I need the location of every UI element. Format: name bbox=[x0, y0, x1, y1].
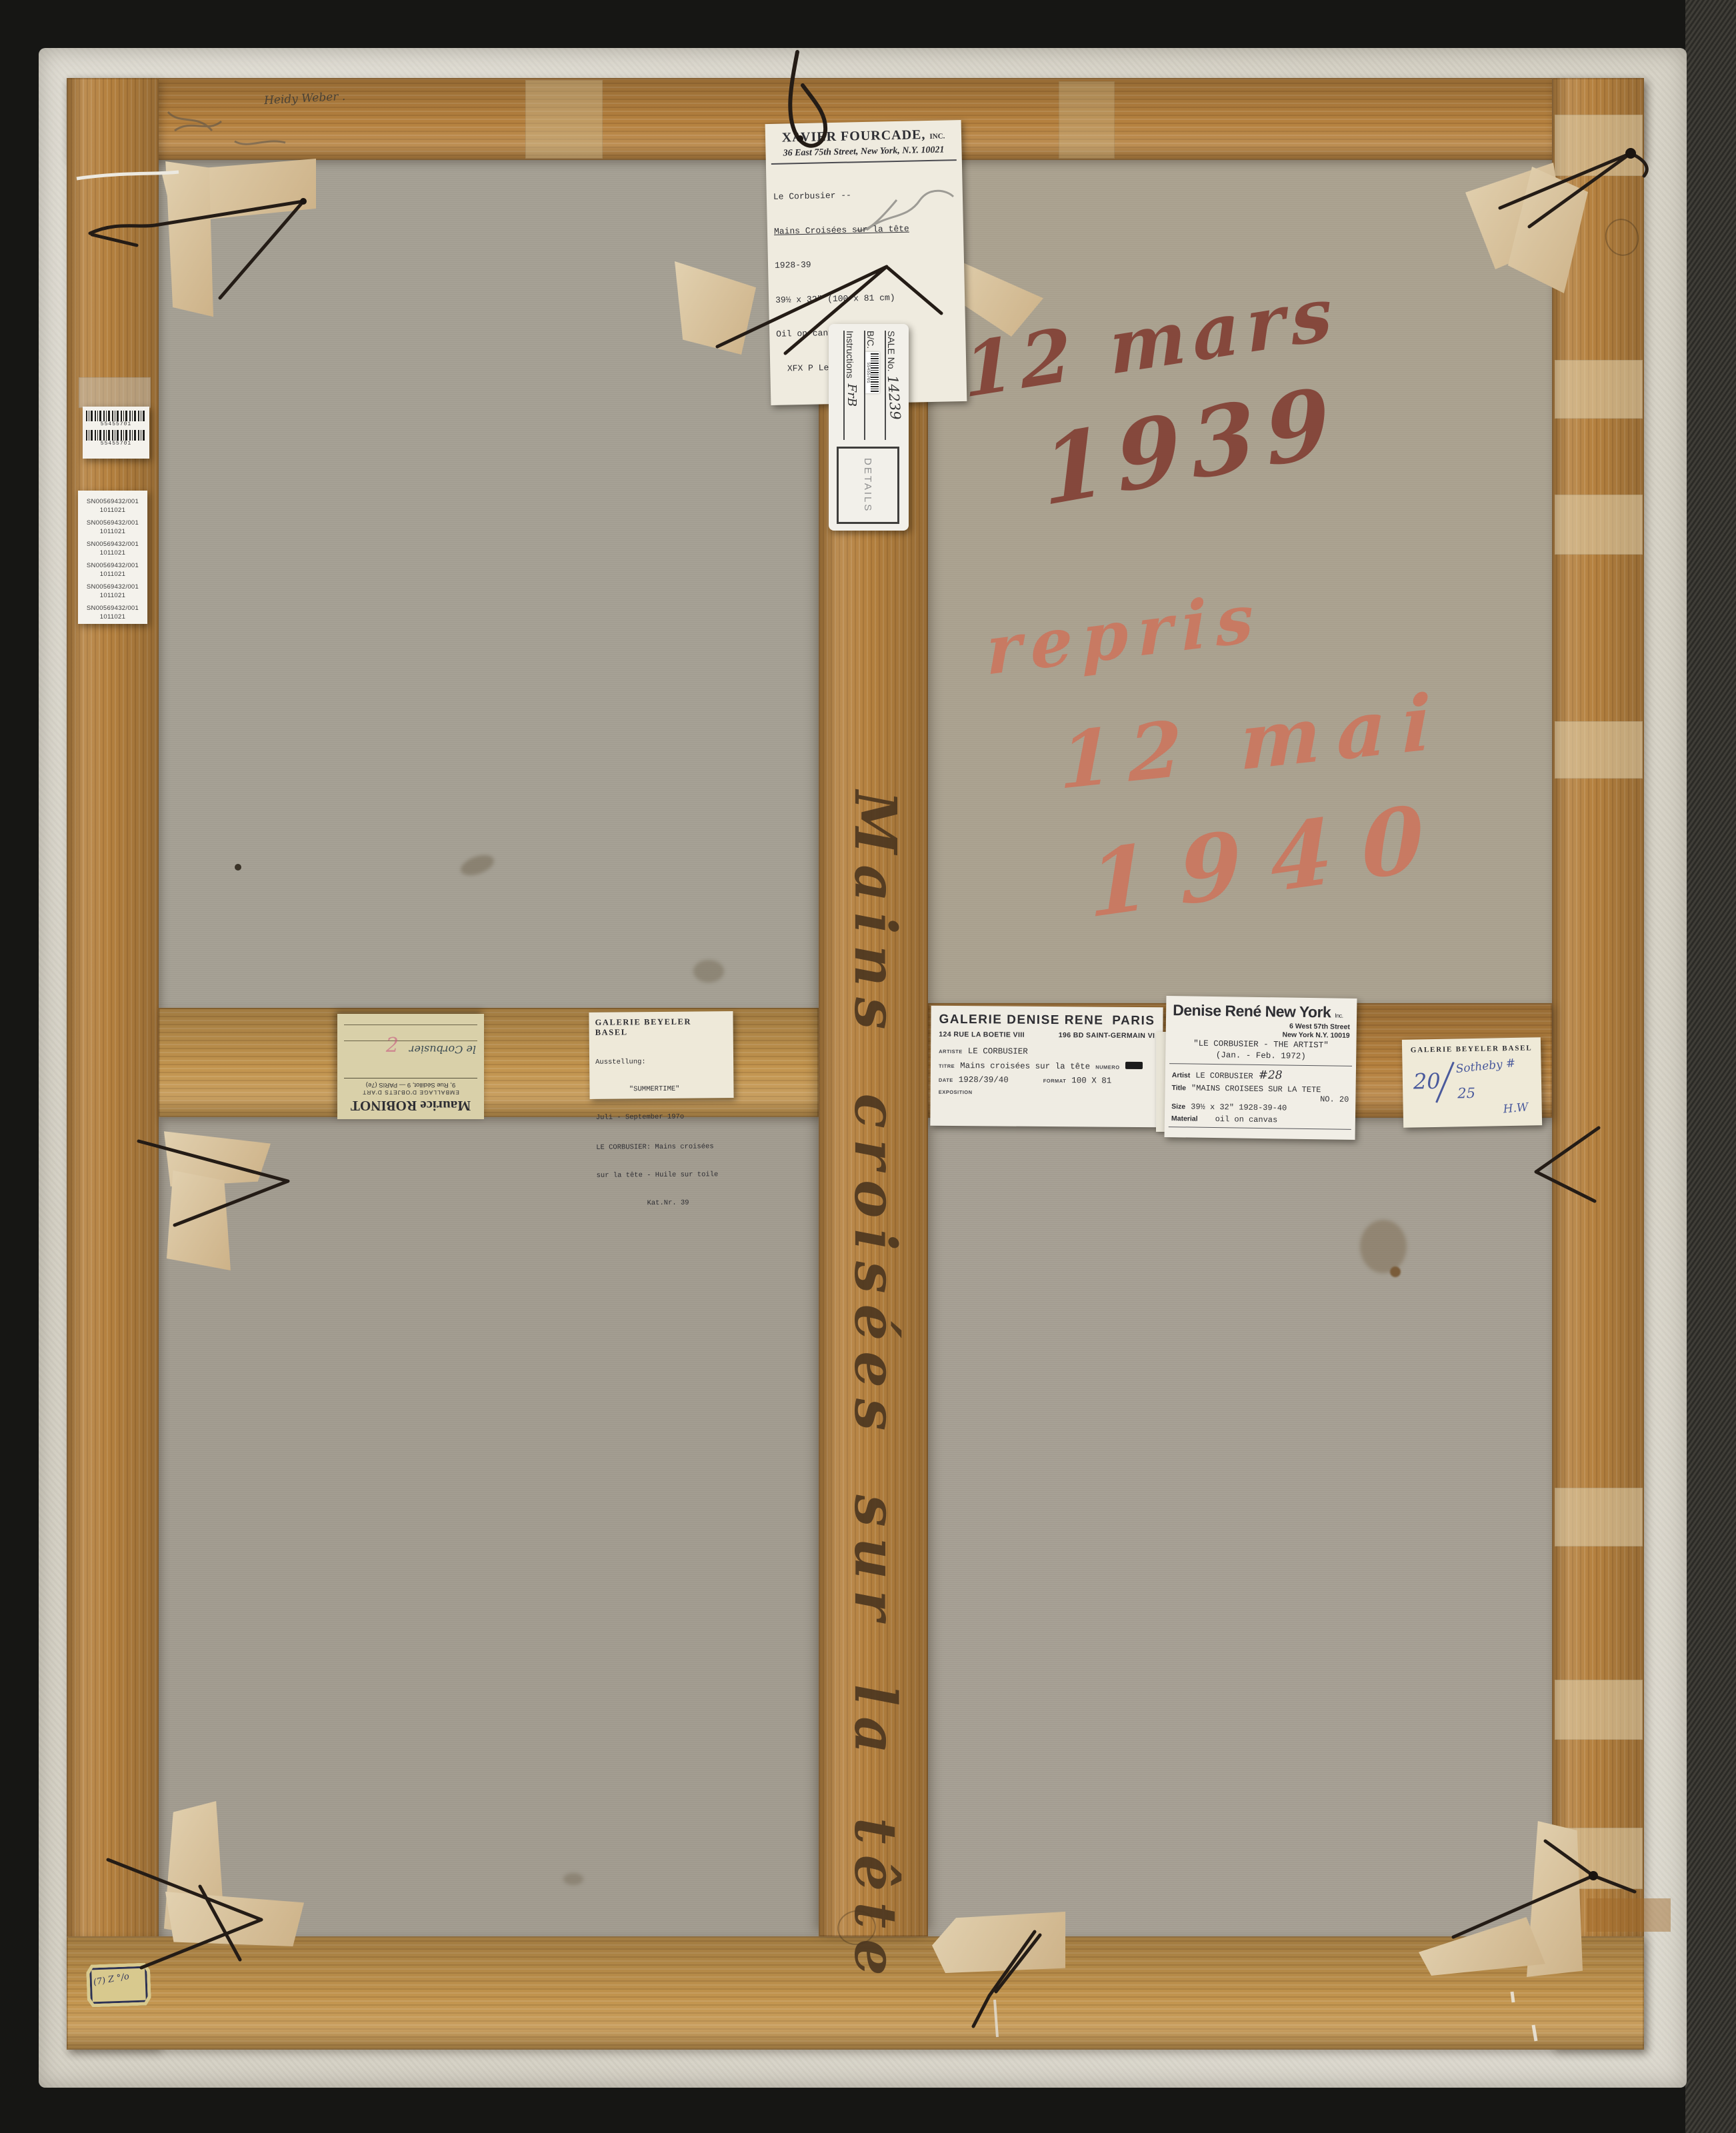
robinot-line2: EMBALLAGE D'OBJETS D'ART bbox=[344, 1089, 477, 1096]
dny-material: oil on canvas bbox=[1215, 1114, 1278, 1124]
sn-entry: SN00569432/0011011021 bbox=[79, 583, 146, 600]
stretcher-bar-left bbox=[67, 78, 159, 2050]
dny-address: 6 West 57th Street New York N.Y. 10019 bbox=[1173, 1021, 1350, 1041]
drp-addresses: 124 RUE LA BOETIE VIII 196 BD SAINT-GERM… bbox=[939, 1031, 1155, 1040]
label-denise-rene-paris: GALERIE DENISE RENE PARIS 124 RUE LA BOE… bbox=[930, 1006, 1163, 1127]
fourcade-inc: INC. bbox=[929, 132, 945, 140]
label-denise-rene-ny: Denise René New York Inc. 6 West 57th St… bbox=[1165, 996, 1357, 1140]
drp-addr1: 124 RUE LA BOETIE VIII bbox=[939, 1031, 1025, 1039]
robinot-name: Maurice ROBINOT bbox=[344, 1097, 477, 1114]
stain bbox=[1360, 1220, 1407, 1273]
sale-no-value: 14239 bbox=[885, 375, 904, 421]
sn-entry: SN00569432/0011011021 bbox=[79, 497, 146, 515]
instructions-label: Instructions bbox=[845, 331, 855, 379]
stain bbox=[563, 1873, 583, 1885]
beyeler-kat-nr: Kat.Nr. 39 bbox=[597, 1198, 729, 1209]
beyeler-ausstellung: Ausstellung: bbox=[595, 1057, 727, 1068]
drp-format-label: FORMAT bbox=[1043, 1078, 1067, 1084]
beyeler-gallery-name: GALERIE BEYELER BASEL bbox=[595, 1017, 727, 1038]
fourcade-date: 1928-39 bbox=[775, 256, 957, 271]
sn-entry: SN00569432/0011011021 bbox=[79, 561, 146, 579]
sale-tag-fields: SALE No. 14239 B/C. 55455701 Instruction… bbox=[833, 331, 902, 440]
robinot-handwriting: le Corbusier bbox=[409, 1043, 476, 1056]
tape-strip bbox=[1555, 115, 1643, 176]
ruled-line bbox=[344, 1025, 477, 1025]
beyeler-dates: Juli - September 197o bbox=[596, 1112, 728, 1123]
fourcade-size: 39½ x 32" (100 x 81 cm) bbox=[775, 291, 958, 306]
beyeler-small-gallery: GALERIE BEYELER BASEL bbox=[1407, 1044, 1535, 1054]
dny-header: Denise René New York Inc. bbox=[1173, 1001, 1350, 1022]
stain bbox=[1390, 1266, 1401, 1277]
beyeler-summertime: "SUMMERTIME" bbox=[595, 1084, 727, 1095]
divider bbox=[1169, 1126, 1351, 1130]
drp-artiste: LE CORBUSIER bbox=[968, 1047, 1028, 1057]
corner-sticker: (7) Z °/o bbox=[86, 1962, 151, 2007]
instructions-row: Instructions FrB bbox=[843, 331, 859, 440]
fourcade-gallery-name: XAVIER FOURCADE, INC. bbox=[772, 127, 955, 146]
tape-strip bbox=[1059, 81, 1115, 159]
tape-strip bbox=[1555, 1680, 1643, 1740]
robinot-line3: 9, Rue Sédillot, 9 — PARIS (7e) bbox=[344, 1078, 477, 1088]
dny-size: 39½ x 32" 1928-39-40 bbox=[1191, 1102, 1287, 1112]
tape-strip bbox=[1555, 1488, 1643, 1546]
dny-artist: LE CORBUSIER bbox=[1195, 1070, 1253, 1080]
tape-strip bbox=[525, 80, 603, 159]
inscription-title-vertical: Mains croisées sur la tête bbox=[821, 791, 928, 1937]
label-barcodes: 55455701 55455701 bbox=[83, 407, 149, 459]
tape-strip bbox=[1555, 721, 1643, 779]
hand-25: 25 bbox=[1457, 1085, 1475, 1101]
tape-residue bbox=[1587, 1898, 1671, 1932]
label-beyeler-summertime: GALERIE BEYELER BASEL Ausstellung: "SUMM… bbox=[589, 1011, 733, 1099]
inscription-title-text: Mains croisées sur la tête bbox=[821, 791, 928, 1937]
label-beyeler-small: GALERIE BEYELER BASEL 20 Sotheby # 25 H.… bbox=[1402, 1037, 1542, 1128]
drp-artiste-label: ARTISTE bbox=[939, 1049, 963, 1055]
drp-date: 1928/39/40 bbox=[959, 1075, 1009, 1085]
sn-entry: SN00569432/0011011021 bbox=[79, 540, 146, 557]
dny-title: "MAINS CROISEES SUR LA TETE bbox=[1191, 1083, 1321, 1094]
backdrop-weave-right bbox=[1685, 0, 1736, 2133]
tape-strip bbox=[1555, 360, 1643, 419]
stain bbox=[235, 864, 241, 871]
divider bbox=[771, 159, 957, 165]
barcode bbox=[86, 430, 146, 441]
drp-titre: Mains croisées sur la tête bbox=[960, 1061, 1090, 1071]
dny-size-label: Size bbox=[1171, 1102, 1185, 1110]
hand-sotheby: Sotheby # bbox=[1455, 1057, 1516, 1076]
sn-entry: SN00569432/0011011021 bbox=[79, 519, 146, 536]
ruled-line bbox=[344, 1041, 477, 1041]
drp-city: PARIS bbox=[1112, 1014, 1155, 1029]
bc-label: B/C. bbox=[865, 331, 876, 349]
bc-mini-sticker: 55455701 bbox=[865, 352, 879, 393]
barcode bbox=[86, 411, 146, 421]
label-serial-numbers: SN00569432/0011011021 SN00569432/0011011… bbox=[78, 491, 147, 624]
beyeler-work-line1: LE CORBUSIER: Mains croisées bbox=[596, 1143, 728, 1154]
drp-header: GALERIE DENISE RENE PARIS bbox=[939, 1013, 1155, 1029]
dny-material-label: Material bbox=[1171, 1114, 1198, 1123]
drp-addr2: 196 BD SAINT-GERMAIN VI bbox=[1059, 1031, 1155, 1040]
drp-gallery: GALERIE DENISE RENE bbox=[939, 1013, 1103, 1029]
bc-row: B/C. 55455701 bbox=[864, 331, 879, 440]
divider bbox=[1169, 1063, 1352, 1066]
instructions-value: FrB bbox=[845, 384, 859, 407]
barcode bbox=[871, 353, 879, 392]
fourcade-address: 36 East 75th Street, New York, N.Y. 1002… bbox=[772, 145, 955, 159]
dny-artist-label: Artist bbox=[1172, 1071, 1191, 1079]
beyeler-work-line2: sur la tête - Huile sur toile bbox=[597, 1170, 729, 1181]
barcode-number: 55455701 bbox=[86, 441, 146, 447]
sn-entry: SN00569432/0011011021 bbox=[79, 604, 146, 621]
dny-inc: Inc. bbox=[1335, 1013, 1343, 1019]
tape-strip bbox=[79, 377, 151, 408]
tape-strip bbox=[1555, 495, 1643, 555]
barcode-number: 55455701 bbox=[86, 421, 146, 427]
hand-hw: H.W bbox=[1503, 1100, 1529, 1116]
label-maurice-robinot: Maurice ROBINOT EMBALLAGE D'OBJETS D'ART… bbox=[337, 1014, 484, 1119]
robinot-stamp-2: 2 bbox=[386, 1034, 399, 1057]
drp-numero-redacted bbox=[1125, 1062, 1143, 1069]
hand-20: 20 bbox=[1413, 1068, 1441, 1094]
sale-no-label: SALE No. bbox=[886, 331, 897, 371]
dny-hand-number: #28 bbox=[1259, 1068, 1283, 1082]
barcode-number: 55455701 bbox=[866, 353, 871, 392]
sale-no-row: SALE No. 14239 bbox=[885, 331, 902, 440]
drp-titre-label: TITRE bbox=[939, 1063, 955, 1069]
details-box: DETAILS bbox=[837, 447, 899, 524]
drp-exposition-label: EXPOSITION bbox=[939, 1089, 973, 1095]
painting-verso-photo: 12 mars 1939 repris 12 mai 1940 Mains cr… bbox=[0, 0, 1736, 2133]
stretcher-key-left-middle-2 bbox=[167, 1170, 231, 1270]
drp-date-label: DATE bbox=[939, 1077, 953, 1083]
drp-format: 100 X 81 bbox=[1071, 1076, 1111, 1085]
fourcade-title: Mains Croisées sur la tête bbox=[774, 222, 957, 237]
fourcade-artist: Le Corbusier -- bbox=[773, 187, 956, 203]
stain bbox=[693, 960, 724, 983]
label-sale-tag: SALE No. 14239 B/C. 55455701 Instruction… bbox=[829, 324, 909, 531]
drp-numero-label: NUMERO bbox=[1095, 1065, 1119, 1070]
dny-no: NO. 20 bbox=[1320, 1094, 1349, 1104]
dny-title-label: Title bbox=[1171, 1084, 1186, 1092]
